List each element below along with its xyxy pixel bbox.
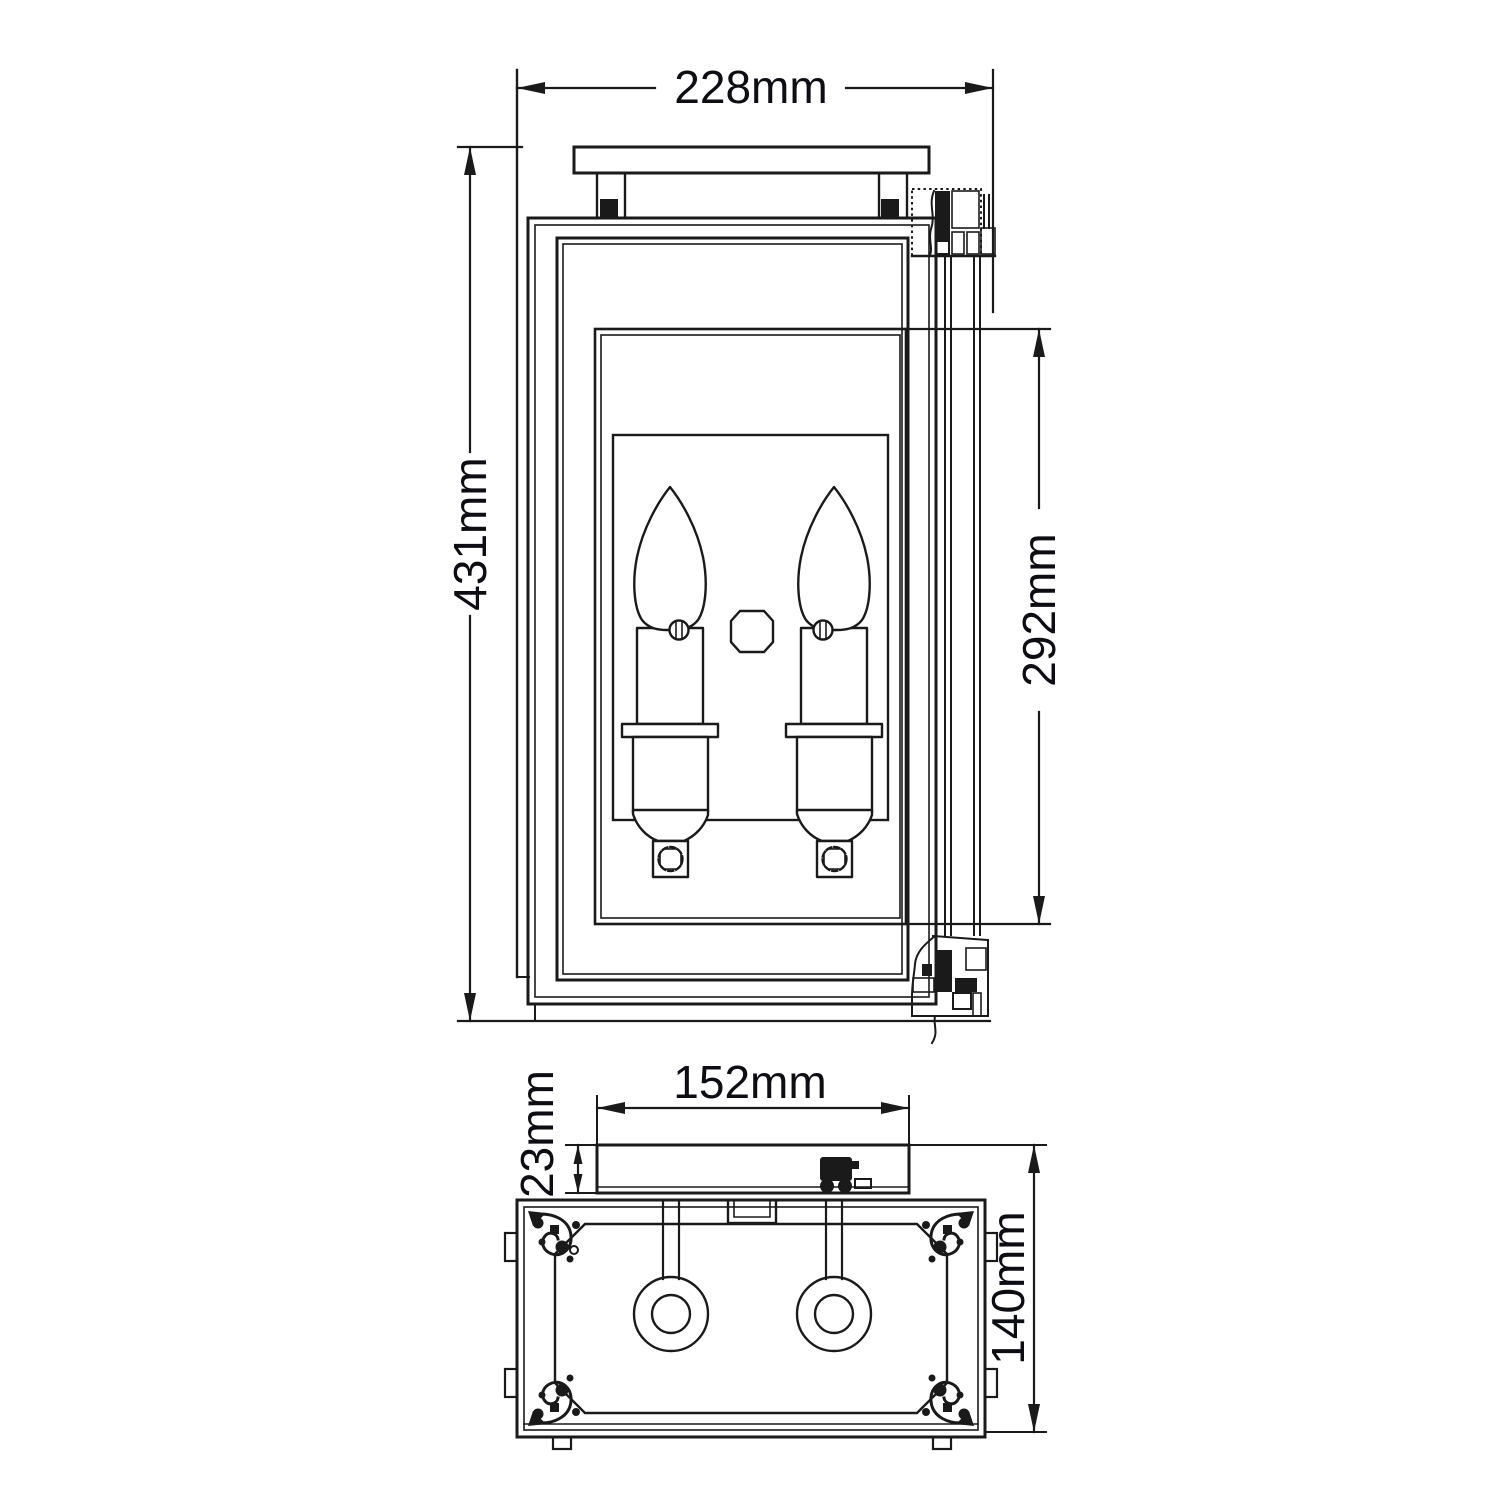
dim-label-plan-width: 152mm [673, 1056, 826, 1108]
top-plan-view: 152mm 23mm 140mm [505, 1056, 1046, 1449]
dim-label-plan-backplate-depth: 23mm [511, 1070, 563, 1198]
candle-bulb [634, 487, 705, 630]
socket-top [797, 1277, 871, 1351]
door-latch [728, 1200, 776, 1223]
dim-label-plan-depth: 140mm [982, 1211, 1034, 1364]
dimension-plan-backplate-depth: 23mm [511, 1070, 597, 1198]
socket-top [634, 1277, 708, 1351]
candle-bulb [798, 487, 869, 630]
inner-chamfered-frame [555, 1224, 947, 1413]
dimension-front-inner-height: 292mm [906, 329, 1065, 924]
technical-drawing: 228mm 431mm 292mm [0, 0, 1500, 1500]
backplate [597, 1145, 909, 1193]
connector-fitting [820, 1157, 871, 1193]
dimension-plan-width: 152mm [597, 1056, 909, 1147]
top-mounting-plate [574, 147, 929, 173]
top-bracket-section [912, 189, 995, 256]
front-elevation-view: 228mm 431mm 292mm [444, 61, 1065, 1043]
dim-label-front-height: 431mm [444, 457, 496, 610]
bottom-bracket-section [912, 936, 988, 1043]
spec-sheet-page: 228mm 431mm 292mm [0, 0, 1500, 1500]
center-boss [731, 611, 773, 652]
dim-label-front-inner-height: 292mm [1013, 533, 1065, 686]
body-outline [517, 1200, 985, 1437]
dimension-front-width: 228mm [517, 61, 993, 312]
lantern-outer-frame [528, 218, 936, 1004]
mounting-stud [881, 199, 899, 219]
mounting-stud [600, 199, 618, 219]
dim-label-front-width: 228mm [674, 61, 827, 113]
